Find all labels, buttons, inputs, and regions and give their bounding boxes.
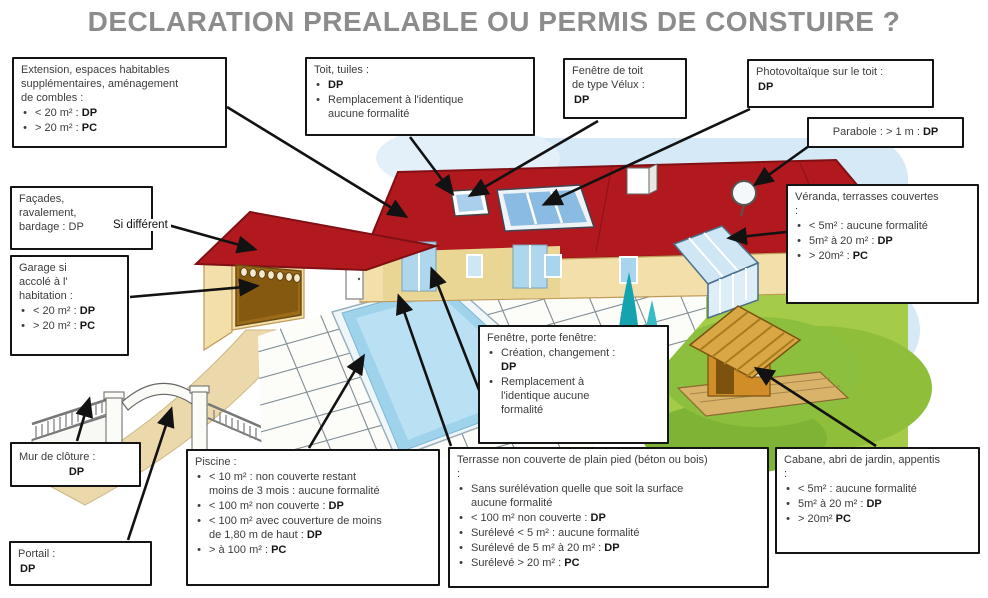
callout-item: •Surélevé de 5 m² à 20 m² : DP bbox=[457, 542, 760, 556]
callout-item: DP bbox=[18, 563, 143, 577]
callout-lead: Garage si accolé à l' habitation : bbox=[19, 262, 120, 304]
callout-item: •5m² à 20 m² : DP bbox=[795, 235, 970, 249]
bullet-icon: • bbox=[784, 498, 792, 512]
callout-terrasse: Terrasse non couverte de plain pied (bét… bbox=[448, 447, 769, 588]
label-si-different: Si différent bbox=[110, 219, 171, 231]
callout-veranda: Véranda, terrasses couvertes :•< 5m² : a… bbox=[786, 184, 979, 304]
callout-lead: Fenêtre de toit de type Vélux : bbox=[572, 65, 678, 93]
callout-item: •5m² à 20 m² : DP bbox=[784, 498, 971, 512]
callout-item: •Surélevé > 20 m² : PC bbox=[457, 557, 760, 571]
callout-item-text: Remplacement à l'identique aucune formal… bbox=[328, 94, 463, 122]
bullet-icon: • bbox=[784, 513, 792, 527]
callout-lead: Terrasse non couverte de plain pied (bét… bbox=[457, 454, 760, 482]
callout-item: •> 20m² : PC bbox=[795, 250, 970, 264]
callout-item: •< 100 m² non couverte : DP bbox=[195, 500, 431, 514]
bullet-icon: • bbox=[195, 471, 203, 485]
callout-piscine: Piscine :•< 10 m² : non couverte restant… bbox=[186, 449, 440, 586]
callout-item: •< 10 m² : non couverte restant moins de… bbox=[195, 471, 431, 499]
callout-item-text: < 100 m² avec couverture de moins de 1,8… bbox=[209, 515, 382, 543]
callout-lead: Photovoltaïque sur le toit : bbox=[756, 66, 925, 80]
callout-item: DP bbox=[572, 94, 678, 108]
callout-cabane: Cabane, abri de jardin, appentis :•< 5m²… bbox=[775, 447, 980, 554]
callout-item: •Remplacement à l'identique aucune forma… bbox=[314, 94, 526, 122]
callout-fenetre-porte-fenetre: Fenêtre, porte fenêtre:•Création, change… bbox=[478, 325, 669, 444]
bullet-icon: • bbox=[457, 542, 465, 556]
callout-item: •DP bbox=[314, 79, 526, 93]
bullet-icon: • bbox=[457, 527, 465, 541]
callout-item-text: > 20m² PC bbox=[798, 513, 851, 527]
callout-item: •< 20 m² : DP bbox=[21, 107, 218, 121]
callout-item: •< 20 m² : DP bbox=[19, 305, 120, 319]
callout-toit-tuiles: Toit, tuiles :•DP•Remplacement à l'ident… bbox=[305, 57, 535, 136]
callout-item: DP bbox=[19, 466, 132, 480]
callout-lead: Fenêtre, porte fenêtre: bbox=[487, 332, 660, 346]
callout-parabole: Parabole : > 1 m : DP bbox=[807, 117, 964, 148]
bullet-icon: • bbox=[784, 483, 792, 497]
callout-item: •< 5m² : aucune formalité bbox=[795, 220, 970, 234]
bullet-icon: • bbox=[21, 122, 29, 136]
bullet-icon: • bbox=[195, 500, 203, 514]
bullet-icon: • bbox=[21, 107, 29, 121]
callout-photovoltaique: Photovoltaïque sur le toit :DP bbox=[747, 59, 934, 108]
callout-item-text: < 20 m² : DP bbox=[35, 107, 97, 121]
callout-item: •< 100 m² avec couverture de moins de 1,… bbox=[195, 515, 431, 543]
callout-item: DP bbox=[756, 81, 925, 95]
bullet-icon: • bbox=[19, 305, 27, 319]
infographic-page: DECLARATION PREALABLE OU PERMIS DE CONST… bbox=[0, 0, 988, 598]
callout-item-text: Surélevé > 20 m² : PC bbox=[471, 557, 580, 571]
bullet-icon: • bbox=[487, 347, 495, 361]
bullet-icon: • bbox=[795, 220, 803, 234]
bullet-icon: • bbox=[314, 94, 322, 108]
callout-portail: Portail :DP bbox=[9, 541, 152, 586]
callout-lead: Véranda, terrasses couvertes : bbox=[795, 191, 970, 219]
callout-item-text: 5m² à 20 m² : DP bbox=[809, 235, 893, 249]
bullet-icon: • bbox=[457, 512, 465, 526]
callout-lead: Piscine : bbox=[195, 456, 431, 470]
callout-item: •> à 100 m² : PC bbox=[195, 544, 431, 558]
callout-item: •> 20 m² : PC bbox=[19, 320, 120, 334]
callout-item: •< 100 m² non couverte : DP bbox=[457, 512, 760, 526]
callout-item: •> 20m² PC bbox=[784, 513, 971, 527]
callout-item-text: < 100 m² non couverte : DP bbox=[209, 500, 344, 514]
callout-mur-de-cloture: Mur de clôture :DP bbox=[10, 442, 141, 487]
callout-extension: Extension, espaces habitables supplément… bbox=[12, 57, 227, 148]
callout-item-text: < 10 m² : non couverte restant moins de … bbox=[209, 471, 380, 499]
callout-item-text: Création, changement : DP bbox=[501, 347, 615, 375]
callout-lead: Toit, tuiles : bbox=[314, 64, 526, 78]
page-title: DECLARATION PREALABLE OU PERMIS DE CONST… bbox=[0, 6, 988, 38]
callout-item-text: < 100 m² non couverte : DP bbox=[471, 512, 606, 526]
callout-lead: Portail : bbox=[18, 548, 143, 562]
bullet-icon: • bbox=[487, 376, 495, 390]
callout-garage: Garage si accolé à l' habitation :•< 20 … bbox=[10, 255, 129, 356]
callout-item-text: 5m² à 20 m² : DP bbox=[798, 498, 882, 512]
callout-lead: Parabole : > 1 m : DP bbox=[833, 126, 938, 140]
callout-lead: Mur de clôture : bbox=[19, 451, 132, 465]
bullet-icon: • bbox=[457, 483, 465, 497]
callout-item: •Sans surélévation quelle que soit la su… bbox=[457, 483, 760, 511]
callout-item-text: DP bbox=[758, 81, 773, 95]
callout-fenetre-de-toit: Fenêtre de toit de type Vélux :DP bbox=[563, 58, 687, 119]
callout-item-text: DP bbox=[328, 79, 343, 93]
callout-item-text: > 20 m² : PC bbox=[33, 320, 95, 334]
bullet-icon: • bbox=[314, 79, 322, 93]
callout-item: •Remplacement à l'identique aucune forma… bbox=[487, 376, 660, 418]
callout-facades: Façades, ravalement, bardage : DP bbox=[10, 186, 153, 250]
callout-item: •Surélevé < 5 m² : aucune formalité bbox=[457, 527, 760, 541]
callout-item-text: DP bbox=[20, 563, 35, 577]
bullet-icon: • bbox=[795, 235, 803, 249]
callout-item-text: Surélevé < 5 m² : aucune formalité bbox=[471, 527, 639, 541]
callout-lead: Cabane, abri de jardin, appentis : bbox=[784, 454, 971, 482]
callout-item-text: Remplacement à l'identique aucune formal… bbox=[501, 376, 589, 418]
callout-item-text: DP bbox=[69, 466, 84, 480]
bullet-icon: • bbox=[457, 557, 465, 571]
callout-item-text: < 20 m² : DP bbox=[33, 305, 95, 319]
callout-item-text: > 20 m² : PC bbox=[35, 122, 97, 136]
callout-item-text: Surélevé de 5 m² à 20 m² : DP bbox=[471, 542, 620, 556]
callout-item-text: < 5m² : aucune formalité bbox=[809, 220, 928, 234]
callout-lead: Extension, espaces habitables supplément… bbox=[21, 64, 218, 106]
bullet-icon: • bbox=[19, 320, 27, 334]
bullet-icon: • bbox=[195, 515, 203, 529]
bullet-icon: • bbox=[795, 250, 803, 264]
callout-item-text: Sans surélévation quelle que soit la sur… bbox=[471, 483, 683, 511]
callout-item: •Création, changement : DP bbox=[487, 347, 660, 375]
callout-item-text: < 5m² : aucune formalité bbox=[798, 483, 917, 497]
callout-item: •> 20 m² : PC bbox=[21, 122, 218, 136]
callout-item-text: > 20m² : PC bbox=[809, 250, 868, 264]
callout-item: •< 5m² : aucune formalité bbox=[784, 483, 971, 497]
bullet-icon: • bbox=[195, 544, 203, 558]
callout-item-text: > à 100 m² : PC bbox=[209, 544, 286, 558]
callout-item-text: DP bbox=[574, 94, 589, 108]
